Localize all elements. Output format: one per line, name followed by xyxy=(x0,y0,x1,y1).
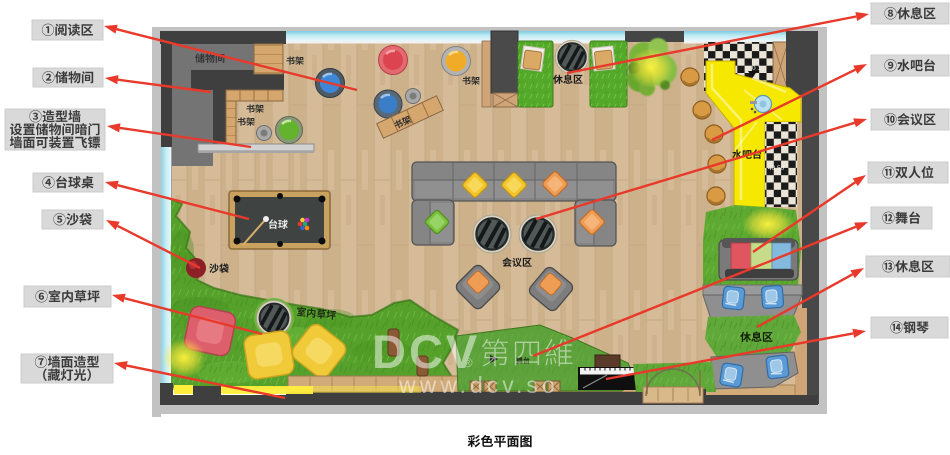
svg-text:0 1: 0 1 xyxy=(752,65,761,72)
svg-text:®: ® xyxy=(463,355,473,370)
svg-text:DCV: DCV xyxy=(372,325,480,378)
svg-text:www.dcv.so: www.dcv.so xyxy=(398,372,559,398)
svg-text:40 50: 40 50 xyxy=(768,165,785,172)
